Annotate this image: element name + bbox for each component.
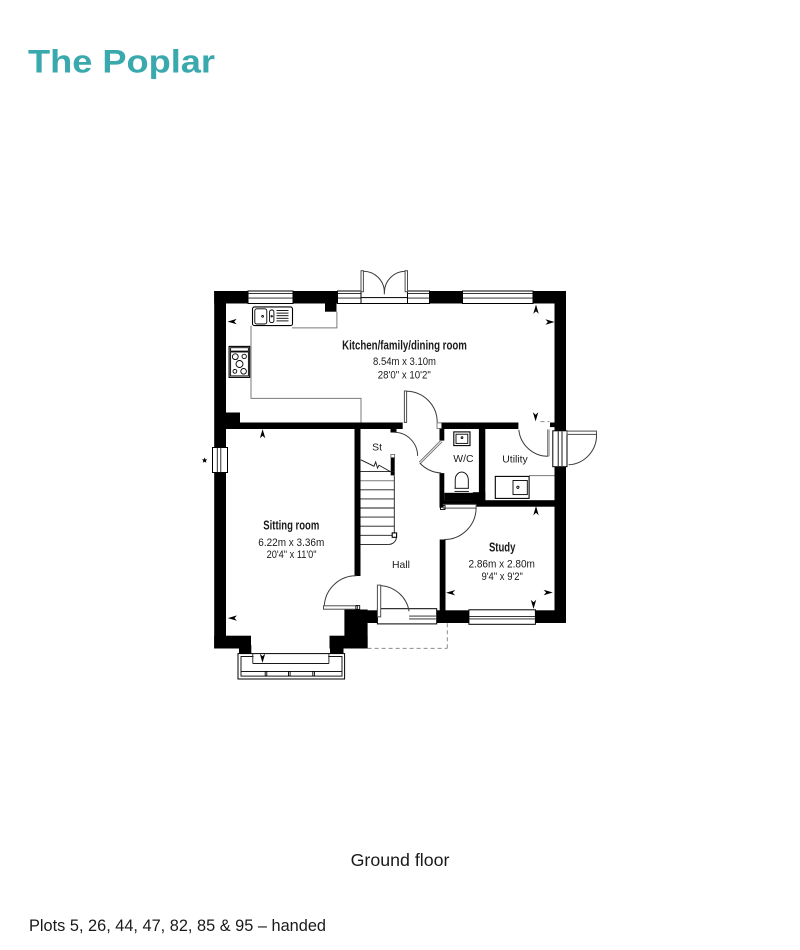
svg-text:Utility: Utility (502, 454, 528, 465)
svg-text:2.86m x 2.80m: 2.86m x 2.80m (468, 559, 535, 571)
svg-text:28'0" x 10'2": 28'0" x 10'2" (378, 369, 431, 381)
svg-text:9'4" x 9'2": 9'4" x 9'2" (481, 571, 523, 583)
svg-text:St: St (372, 442, 382, 453)
svg-text:Ground floor: Ground floor (351, 850, 450, 870)
svg-text:Study: Study (489, 540, 516, 555)
svg-text:The Poplar: The Poplar (28, 44, 215, 80)
svg-text:W/C: W/C (453, 454, 474, 465)
svg-text:Plots 5, 26, 44, 47, 82, 85 &: Plots 5, 26, 44, 47, 82, 85 & 95 – hande… (29, 916, 326, 935)
svg-text:20'4" x 11'0": 20'4" x 11'0" (267, 549, 317, 561)
svg-text:6.22m x 3.36m: 6.22m x 3.36m (258, 537, 324, 549)
svg-text:Sitting room: Sitting room (263, 518, 319, 533)
svg-text:Hall: Hall (392, 560, 410, 571)
svg-text:Kitchen/family/dining room: Kitchen/family/dining room (342, 338, 467, 353)
svg-text:8.54m x 3.10m: 8.54m x 3.10m (373, 356, 436, 368)
